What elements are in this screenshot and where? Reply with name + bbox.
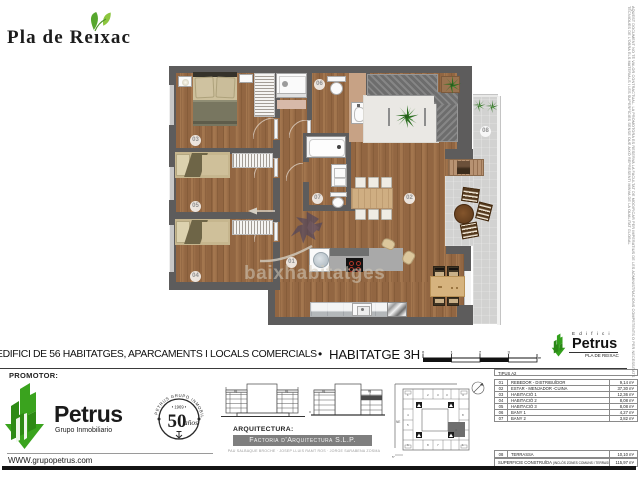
- svg-text:5°: 5°: [392, 455, 396, 459]
- svg-text:PB: PB: [368, 390, 372, 393]
- svg-text:años: años: [184, 418, 198, 427]
- svg-text:• 1969 •: • 1969 •: [172, 405, 187, 410]
- svg-text:2: 2: [479, 350, 482, 355]
- svg-text:NE: NE: [396, 420, 400, 424]
- svg-text:PB: PB: [285, 390, 289, 393]
- svg-text:PB: PB: [234, 390, 238, 393]
- svg-text:m: m: [538, 355, 541, 360]
- svg-text:1: 1: [451, 350, 454, 355]
- svg-text:0: 0: [422, 350, 425, 355]
- svg-text:PB: PB: [322, 390, 326, 393]
- svg-text:3: 3: [508, 350, 511, 355]
